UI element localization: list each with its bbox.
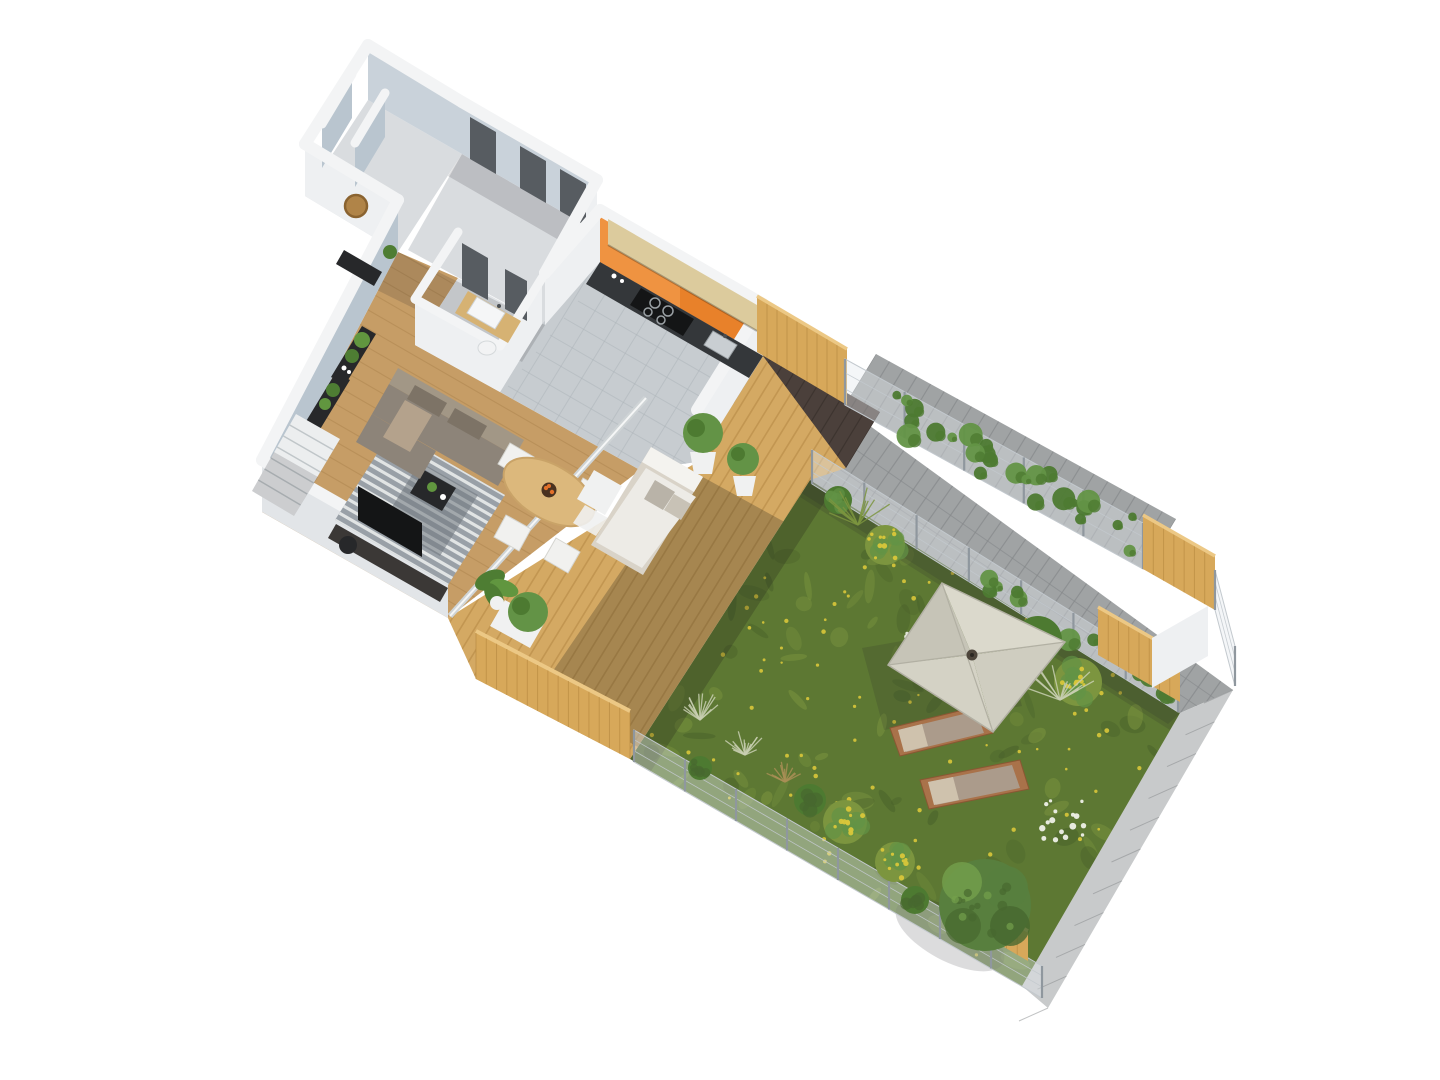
ivy-clump <box>1036 474 1047 485</box>
ivy-clump <box>1117 524 1123 530</box>
parasol-pole <box>970 653 974 657</box>
bush-flower <box>895 863 899 867</box>
lawn-flower <box>948 760 952 764</box>
shelf-plant <box>354 332 370 348</box>
ivy-clump <box>1049 473 1058 482</box>
planter-shrub <box>727 443 759 475</box>
coffee-table-plant <box>427 482 437 492</box>
ivy-clump <box>990 459 998 467</box>
white-flower <box>1074 813 1080 819</box>
tree-texture <box>1002 883 1011 892</box>
ivy-clump <box>989 590 997 598</box>
tree-texture <box>964 889 972 897</box>
lawn-flower <box>916 865 920 869</box>
lawn-flower <box>858 696 861 699</box>
bush-flower <box>1079 667 1084 672</box>
tree-texture <box>997 901 1007 911</box>
bush-flower <box>882 536 886 540</box>
bush-flower <box>893 556 898 561</box>
lawn-flower <box>785 754 789 758</box>
white-flower <box>1081 823 1086 828</box>
ivy-clump <box>980 472 987 479</box>
ivy-clump <box>1017 591 1024 598</box>
ivy-clump <box>1026 479 1031 484</box>
white-flower <box>1044 802 1048 806</box>
lawn-flower <box>917 808 921 812</box>
lawn-flower <box>763 658 766 661</box>
bush-flower <box>900 853 905 858</box>
bush-speckle <box>690 768 698 776</box>
bush-speckle <box>701 768 710 777</box>
bush-flower <box>891 853 894 856</box>
lawn-flower <box>928 581 931 584</box>
bush-flower <box>881 848 885 852</box>
tree-highlight <box>942 862 982 902</box>
floor-plan-stage <box>0 0 1440 1080</box>
planter-shrub-shade <box>687 419 705 437</box>
ivy-clump <box>897 395 902 400</box>
lawn-flower <box>1094 790 1097 793</box>
white-flower <box>1053 837 1058 842</box>
white-flower <box>1059 829 1064 834</box>
lawn-flower <box>789 793 792 796</box>
counter-accessory <box>620 279 624 283</box>
lawn-flower <box>824 618 827 621</box>
table-lamp <box>342 366 347 371</box>
lawn-flower <box>762 621 765 624</box>
ivy-clump <box>986 445 993 452</box>
lawn-flower <box>784 619 788 623</box>
lawn-flower <box>813 774 818 779</box>
bush-flower <box>892 528 895 531</box>
lawn-flower <box>1137 766 1141 770</box>
white-flower <box>1080 800 1083 803</box>
ivy-clump <box>908 434 921 447</box>
lawn-flower <box>1068 748 1071 751</box>
bush-speckle <box>1076 690 1093 707</box>
lawn-flower <box>816 663 819 666</box>
lawn-flower <box>780 646 783 649</box>
lawn-flower <box>988 852 992 856</box>
bush-speckle <box>799 802 808 811</box>
ivy-clump <box>952 437 957 442</box>
planter-bush-shade <box>512 597 530 615</box>
tree-texture <box>974 903 980 909</box>
bush-flower <box>879 535 882 538</box>
planter-bush <box>508 592 548 632</box>
lawn-flower <box>911 596 916 601</box>
bush-flower <box>1060 680 1065 685</box>
lawn-flower <box>1084 708 1088 712</box>
bush-speckle <box>900 897 912 909</box>
lawn-flower <box>748 626 752 630</box>
bush-flower <box>848 827 853 832</box>
white-flower <box>1049 817 1055 823</box>
bush-flower <box>870 533 874 537</box>
lawn-flower <box>1097 828 1100 831</box>
tree-texture <box>969 905 975 911</box>
yellow-shrub <box>875 842 915 882</box>
white-flower <box>1041 836 1046 841</box>
lawn-flower <box>750 706 754 710</box>
bush-flower <box>883 858 886 861</box>
bush-flower <box>860 813 865 818</box>
lawn-flower <box>847 595 850 598</box>
round-tree <box>939 859 1031 951</box>
tree-texture <box>951 896 959 904</box>
lawn-flower <box>1078 837 1082 841</box>
shelf-plant <box>345 349 359 363</box>
tree-texture <box>959 913 967 921</box>
white-flower <box>1039 825 1045 831</box>
lawn-flower <box>833 602 837 606</box>
faucet <box>723 334 727 338</box>
side-table <box>339 536 357 554</box>
tree-texture <box>987 929 996 938</box>
ivy-clump <box>1129 550 1136 557</box>
ivy-clump <box>1132 516 1137 521</box>
coffee-table-decor <box>440 494 446 500</box>
white-flower <box>1046 820 1050 824</box>
bush-flower <box>846 806 852 812</box>
shelf-plant <box>326 383 340 397</box>
bush-flower <box>892 532 896 536</box>
shelf-plant <box>319 398 331 410</box>
toilet <box>478 341 496 355</box>
ivy-clump <box>935 431 945 441</box>
lawn-flower <box>812 766 816 770</box>
planter-shrub-shade <box>731 447 745 461</box>
bush-flower <box>867 537 871 541</box>
lawn-flower <box>821 629 826 634</box>
lawn-flower <box>1065 768 1068 771</box>
lawn-flower <box>853 705 856 708</box>
bush-flower <box>902 859 905 862</box>
lawn-flower <box>871 786 875 790</box>
lawn-flower <box>1073 712 1077 716</box>
bush-flower <box>874 556 877 559</box>
white-flower <box>1081 833 1084 836</box>
shrub <box>688 756 712 780</box>
lawn-flower <box>902 579 906 583</box>
white-flower <box>1049 799 1052 802</box>
white-flower <box>1069 823 1076 830</box>
white-flower <box>1053 809 1057 813</box>
lawn-flower <box>1097 733 1101 737</box>
lawn-flower <box>712 758 715 761</box>
lawn-flower <box>736 772 739 775</box>
lawn-flower <box>780 661 782 663</box>
lawn-flower <box>1018 750 1021 753</box>
ivy-clump <box>1088 500 1101 513</box>
bush-flower <box>842 819 847 824</box>
tree-texture <box>968 913 976 921</box>
lawn-flower <box>1036 748 1039 751</box>
ivy-clump <box>997 586 1003 592</box>
round-wall-mirror <box>345 195 367 217</box>
lawn-flower <box>1104 728 1109 733</box>
lawn-flower <box>1012 828 1016 832</box>
bush-flower <box>849 814 852 817</box>
fruit <box>547 484 551 488</box>
ivy-clump <box>1035 501 1044 510</box>
white-flower <box>1063 835 1068 840</box>
bush-flower <box>882 543 888 549</box>
bush-speckle <box>825 822 842 839</box>
ivy-clump <box>1080 518 1086 524</box>
planter-pot <box>733 476 756 496</box>
ivy-clump <box>1018 597 1028 607</box>
lawn-flower <box>892 563 896 567</box>
bush-speckle <box>914 892 926 904</box>
ivy-clump <box>975 452 986 463</box>
bush-flower <box>888 867 891 870</box>
lawn-flower <box>759 669 763 673</box>
ivy-clump <box>907 400 913 406</box>
console-plant <box>383 245 397 259</box>
bush-speckle <box>853 818 870 835</box>
fruit <box>550 490 554 494</box>
lawn-flower <box>686 750 690 754</box>
tree-texture <box>984 891 992 899</box>
planter-pot <box>690 452 716 474</box>
lawn-flower <box>914 839 918 843</box>
lawn-flower <box>1065 813 1069 817</box>
lawn-flower <box>863 565 867 569</box>
tree-texture <box>1006 923 1013 930</box>
counter-accessory <box>612 274 617 279</box>
lawn-flower <box>800 754 803 757</box>
bush-flower <box>833 825 836 828</box>
floor-plan-render <box>0 0 1440 1080</box>
lawn-flower <box>843 590 846 593</box>
table-lamp <box>347 370 351 374</box>
ivy-clump <box>1069 638 1081 650</box>
bush-flower <box>899 875 904 880</box>
lawn-flower <box>985 744 987 746</box>
lawn-flower <box>853 739 856 742</box>
lawn-flower <box>806 697 809 700</box>
faucet <box>497 304 501 308</box>
shrub <box>824 486 852 514</box>
ivy-clump <box>989 577 999 587</box>
